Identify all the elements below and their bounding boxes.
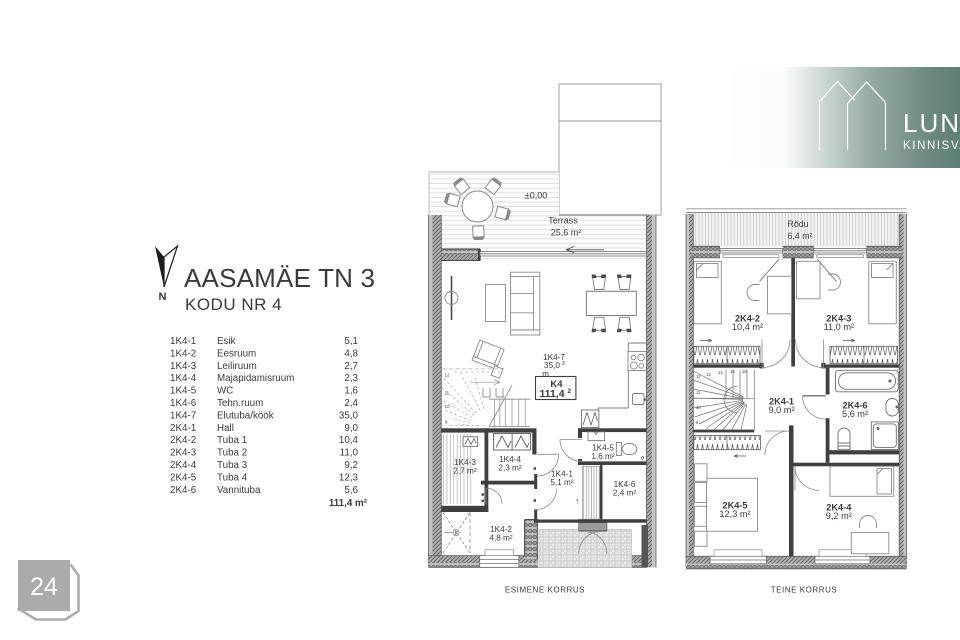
svg-text:10: 10 xyxy=(445,404,451,409)
svg-text:2: 2 xyxy=(562,361,565,367)
svg-text:9,0 m²: 9,0 m² xyxy=(768,405,794,415)
svg-text:↑: ↑ xyxy=(575,496,580,506)
svg-text:16: 16 xyxy=(742,369,747,374)
svg-text:9,0: 9,0 xyxy=(344,423,358,434)
svg-text:Tuba 2: Tuba 2 xyxy=(217,448,247,459)
svg-text:10,4 m²: 10,4 m² xyxy=(732,322,763,332)
svg-text:AASAMÄE TN 3: AASAMÄE TN 3 xyxy=(184,263,375,293)
svg-text:11,0 m²: 11,0 m² xyxy=(824,322,854,332)
svg-text:Rõdu: Rõdu xyxy=(787,219,808,229)
svg-text:11: 11 xyxy=(696,390,701,395)
svg-text:LUN: LUN xyxy=(903,108,960,138)
svg-text:Hall: Hall xyxy=(217,423,234,434)
svg-text:2K4-3: 2K4-3 xyxy=(170,448,197,459)
svg-text:10: 10 xyxy=(696,405,701,410)
svg-text:1K4-7: 1K4-7 xyxy=(170,410,196,421)
svg-text:Leiliruum: Leiliruum xyxy=(217,361,257,372)
svg-text:1K4-2: 1K4-2 xyxy=(170,348,196,359)
svg-text:14: 14 xyxy=(718,370,723,375)
svg-text:2K4-4: 2K4-4 xyxy=(170,460,197,471)
svg-text:N: N xyxy=(159,291,167,303)
svg-text:11: 11 xyxy=(445,391,450,396)
svg-text:1K4-4: 1K4-4 xyxy=(170,373,197,384)
svg-text:5,1 m²: 5,1 m² xyxy=(550,478,573,487)
svg-text:1K4-6: 1K4-6 xyxy=(170,398,197,409)
svg-text:5,1: 5,1 xyxy=(344,336,358,347)
svg-text:2K4-5: 2K4-5 xyxy=(170,472,197,483)
svg-text:2K4-2: 2K4-2 xyxy=(170,435,196,446)
svg-text:12,3: 12,3 xyxy=(339,472,359,483)
svg-text:KINNISVAR: KINNISVAR xyxy=(903,140,960,152)
svg-text:2,7: 2,7 xyxy=(344,361,358,372)
svg-text:Terrass: Terrass xyxy=(548,216,578,226)
svg-text:Tuba 1: Tuba 1 xyxy=(217,435,247,446)
svg-text:2,3: 2,3 xyxy=(344,373,358,384)
svg-text:111,4: 111,4 xyxy=(539,388,564,400)
svg-text:25,6 m²: 25,6 m² xyxy=(551,228,582,238)
svg-text:1,6: 1,6 xyxy=(344,386,358,397)
svg-text:10,4: 10,4 xyxy=(339,435,359,446)
svg-text:12: 12 xyxy=(445,373,451,378)
svg-text:Majapidamisruum: Majapidamisruum xyxy=(217,373,294,384)
svg-text:Esik: Esik xyxy=(217,336,236,347)
svg-text:2,4 m²: 2,4 m² xyxy=(613,489,636,498)
svg-text:9,2: 9,2 xyxy=(344,460,358,471)
svg-text:5,6: 5,6 xyxy=(344,485,358,496)
svg-text:6,4 m²: 6,4 m² xyxy=(788,231,813,241)
svg-text:9,2 m²: 9,2 m² xyxy=(826,511,852,521)
svg-text:Tehn.ruum: Tehn.ruum xyxy=(217,398,263,409)
svg-text:11,0: 11,0 xyxy=(340,448,359,459)
svg-text:13: 13 xyxy=(706,372,711,377)
svg-text:KODU NR 4: KODU NR 4 xyxy=(185,295,282,314)
svg-text:111,4 m²: 111,4 m² xyxy=(329,498,368,509)
svg-text:2K4-6: 2K4-6 xyxy=(170,485,197,496)
svg-text:2K4-1: 2K4-1 xyxy=(170,423,196,434)
svg-text:35,0: 35,0 xyxy=(339,410,359,421)
svg-text:Tuba 4: Tuba 4 xyxy=(217,472,248,483)
svg-text:Eesruum: Eesruum xyxy=(217,348,256,359)
svg-text:Tuba 3: Tuba 3 xyxy=(217,460,248,471)
svg-text:1K4-5: 1K4-5 xyxy=(170,386,197,397)
svg-text:2,3 m²: 2,3 m² xyxy=(498,464,521,473)
svg-text:Elutuba/köök: Elutuba/köök xyxy=(217,410,274,421)
svg-text:15: 15 xyxy=(730,369,735,374)
svg-text:ESIMENE KORRUS: ESIMENE KORRUS xyxy=(505,585,585,594)
svg-text:Vannituba: Vannituba xyxy=(217,485,261,496)
svg-text:WC: WC xyxy=(217,386,233,397)
svg-text:24: 24 xyxy=(30,573,58,601)
svg-text:12: 12 xyxy=(696,374,701,379)
svg-text:1K4-3: 1K4-3 xyxy=(170,361,197,372)
svg-text:4,8: 4,8 xyxy=(344,348,358,359)
svg-text:1K4-1: 1K4-1 xyxy=(170,336,196,347)
svg-text:TEINE KORRUS: TEINE KORRUS xyxy=(771,585,838,594)
svg-text:12,3 m²: 12,3 m² xyxy=(719,509,750,519)
svg-text:±0,00: ±0,00 xyxy=(525,191,547,201)
svg-text:2,4: 2,4 xyxy=(344,398,358,409)
svg-text:2: 2 xyxy=(568,388,572,395)
svg-text:2,7 m²: 2,7 m² xyxy=(453,467,476,476)
svg-text:4,8 m²: 4,8 m² xyxy=(489,534,512,543)
svg-text:1,6 m²: 1,6 m² xyxy=(591,452,614,461)
svg-text:5,6 m²: 5,6 m² xyxy=(842,409,868,419)
